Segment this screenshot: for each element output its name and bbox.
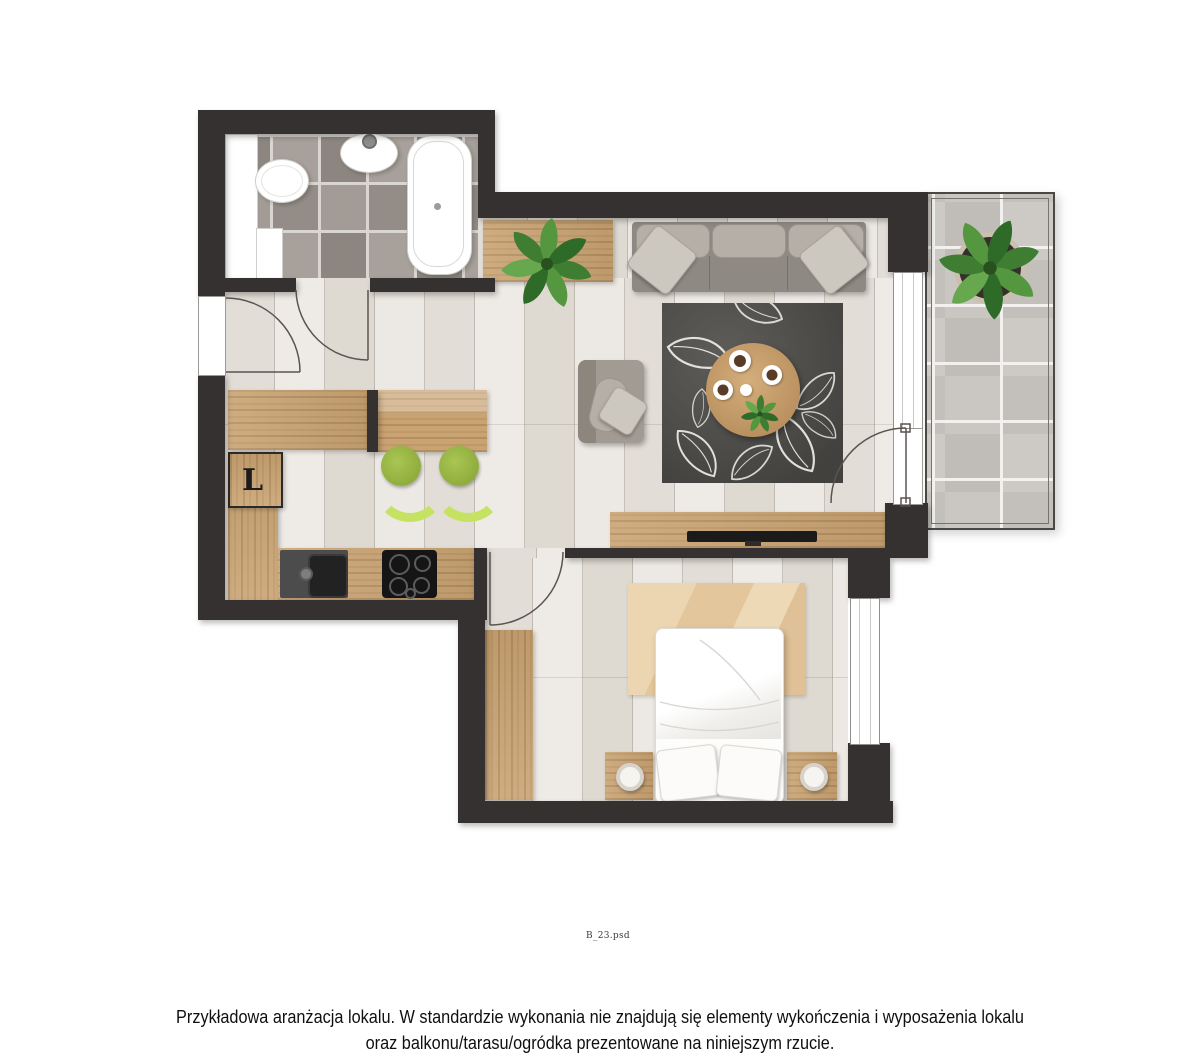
file-label: B_23.psd: [586, 931, 630, 941]
balcony-door-arc: [831, 428, 906, 503]
disclaimer-line-1: Przykładowa aranżacja lokalu. W standard…: [72, 1004, 1128, 1030]
bathroom-door-arc: [296, 290, 368, 360]
duvet-fold-line: [700, 640, 760, 700]
bedroom-door-arc: [490, 552, 563, 625]
duvet-fold-line: [660, 700, 779, 710]
coffee-table-plant: [740, 394, 780, 434]
disclaimer-text: Przykładowa aranżacja lokalu. W standard…: [72, 1004, 1128, 1056]
door-swing-overlay: [0, 0, 1200, 1060]
floor-plan-page: L: [0, 0, 1200, 1060]
entrance-door-arc: [226, 298, 300, 372]
balcony-plant: [938, 216, 1042, 320]
console-plant: [497, 214, 597, 314]
disclaimer-line-2: oraz balkonu/tarasu/ogródka prezentowane…: [72, 1030, 1128, 1056]
duvet-fold-line: [660, 722, 779, 731]
